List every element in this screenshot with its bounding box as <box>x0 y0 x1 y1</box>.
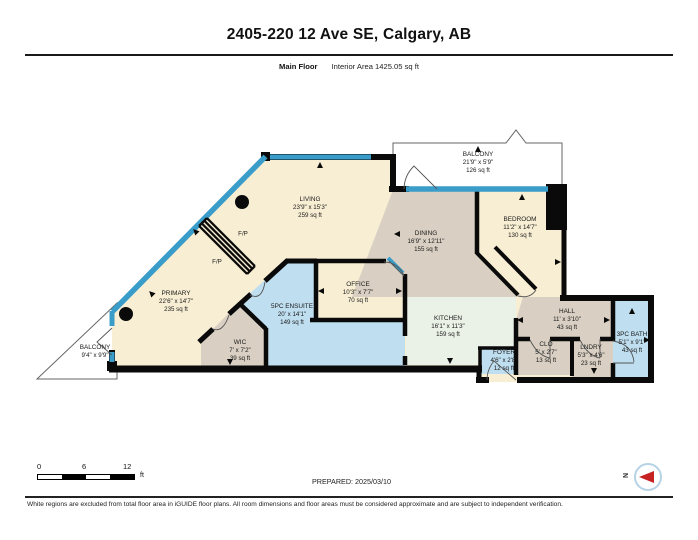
balcony-main-shape <box>393 130 562 188</box>
scale-tick-start: 0 <box>37 462 41 471</box>
scale-unit-label: ft <box>140 472 144 479</box>
disclaimer-text: White regions are excluded from total fl… <box>27 501 678 508</box>
compass-needle-icon <box>639 471 654 483</box>
scale-bar-graphic <box>37 474 135 480</box>
foyer-fill <box>479 348 516 374</box>
compass-dial-icon <box>634 463 662 491</box>
floorplan-drawing <box>0 0 698 540</box>
prepared-date-label: PREPARED: 2025/03/10 <box>312 477 391 486</box>
compass: N <box>620 462 672 492</box>
hall-fill <box>516 297 613 339</box>
compass-north-label: N <box>623 473 630 478</box>
scale-bar: 0 6 12 ft <box>36 462 166 488</box>
column-icon <box>119 307 133 321</box>
column-icon <box>235 195 249 209</box>
clo-fill <box>516 339 572 375</box>
balcony-small-shape <box>37 303 117 379</box>
scale-tick-end: 12 <box>123 462 131 471</box>
footer-divider <box>25 496 673 498</box>
floorplan-page: 2405-220 12 Ave SE, Calgary, AB Main Flo… <box>0 0 698 540</box>
lndry-fill <box>572 339 613 377</box>
scale-tick-mid: 6 <box>82 462 86 471</box>
